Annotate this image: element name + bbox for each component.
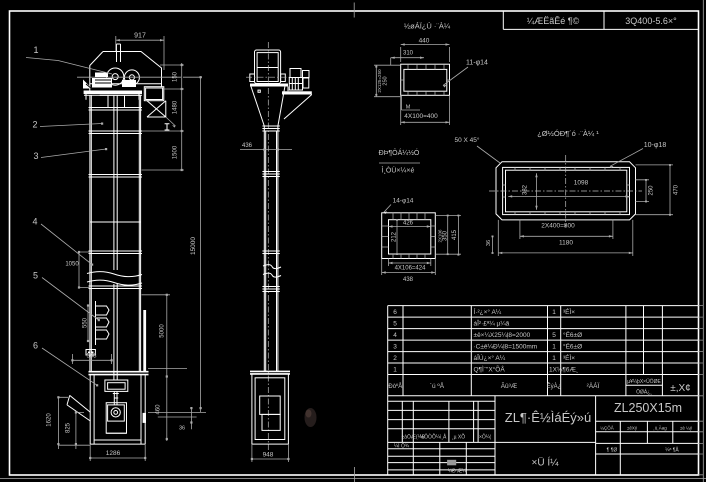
svg-text:150: 150	[173, 71, 179, 82]
svg-text:¼ÔÒÕ¼ì¸Å: ¼ÔÒÕ¼ì¸Å	[420, 434, 447, 441]
svg-text:¸µ XÕ: ¸µ XÕ	[452, 434, 465, 441]
svg-text:50 X 45°: 50 X 45°	[454, 136, 479, 144]
svg-text:±êXý: ±êXý	[627, 426, 638, 431]
svg-text:588: 588	[86, 354, 97, 360]
svg-text:°Ë6±Ø: °Ë6±Ø	[563, 331, 582, 339]
svg-text:948: 948	[263, 452, 274, 459]
svg-text:1500: 1500	[173, 145, 179, 159]
svg-text:550: 550	[83, 317, 89, 328]
svg-text:±,X¢: ±,X¢	[670, 383, 691, 394]
svg-text:1098: 1098	[574, 180, 589, 187]
svg-text:¼ÇÖÅ: ¼ÇÖÅ	[600, 425, 614, 431]
svg-text:ZL¶·Ê½ÌáÉý»ú: ZL¶·Ê½ÌáÉý»ú	[505, 410, 591, 425]
svg-text:3: 3	[33, 151, 38, 161]
svg-text:1050: 1050	[65, 262, 79, 268]
svg-text:350: 350	[442, 230, 448, 241]
svg-text:4X106=424: 4X106=424	[395, 266, 427, 272]
svg-text:áÎ²·£ª¼ µ¼ã: áÎ²·£ª¼ µ¼ã	[474, 319, 510, 328]
svg-text:6: 6	[33, 341, 38, 351]
svg-text:2: 2	[32, 120, 37, 130]
svg-text:4: 4	[393, 332, 397, 339]
svg-text:ÐòºÅ: ÐòºÅ	[388, 383, 402, 390]
svg-text:5: 5	[552, 332, 556, 339]
svg-text:±ê×¼X25¼ļ8=2000: ±ê×¼X25¼ļ8=2000	[474, 332, 531, 339]
svg-text:Q¶Ì¨"X°ÕÅ: Q¶Ì¨"X°ÕÅ	[474, 365, 506, 374]
svg-text:36: 36	[486, 240, 492, 246]
svg-text:2: 2	[393, 355, 397, 362]
svg-text:1480: 1480	[173, 100, 179, 114]
svg-text:825: 825	[66, 422, 72, 433]
svg-text:310: 310	[403, 51, 414, 57]
svg-text:3Q400-5.6×°: 3Q400-5.6×°	[625, 16, 677, 26]
svg-text:¶ ¶Ø: ¶ ¶Ø	[607, 448, 618, 454]
svg-text:1286: 1286	[106, 450, 121, 457]
svg-text:470: 470	[674, 184, 680, 195]
svg-text:1: 1	[552, 344, 556, 351]
svg-text:1620: 1620	[47, 413, 53, 427]
svg-text:¼Ð Æ¼: ¼Ð Æ¼	[448, 469, 467, 475]
svg-text:250: 250	[383, 76, 389, 85]
svg-text:¸ü¸Äag: ¸ü¸Äag	[653, 425, 667, 432]
svg-text:ZL250X15m: ZL250X15m	[614, 401, 682, 415]
svg-text:5000: 5000	[160, 324, 166, 338]
svg-text:°Ë6±Ø: °Ë6±Ø	[563, 343, 582, 351]
svg-text:250: 250	[649, 185, 655, 196]
svg-text:1: 1	[33, 45, 38, 55]
svg-text:2X400=800: 2X400=800	[541, 223, 575, 230]
svg-text:10-φ18: 10-φ18	[644, 142, 667, 149]
svg-text:Í·²¿×° A¼: Í·²¿×° A¼	[474, 307, 502, 316]
svg-text:438: 438	[403, 277, 414, 283]
svg-text:1X¼¶6Æ¸: 1X¼¶6Æ¸	[549, 367, 578, 374]
svg-text:15000: 15000	[190, 237, 197, 255]
svg-text:415: 415	[452, 229, 458, 240]
svg-text:3: 3	[393, 344, 397, 351]
svg-text:4: 4	[32, 217, 37, 227]
svg-text:ÊýÀ¿: ÊýÀ¿	[547, 382, 562, 390]
svg-text:14-φ14: 14-φ14	[393, 198, 414, 205]
svg-text:Ãû³Æ: Ãû³Æ	[501, 381, 518, 390]
svg-text:1: 1	[393, 367, 397, 374]
svg-text:11-φ14: 11-φ14	[466, 60, 488, 67]
svg-text:1180: 1180	[559, 240, 573, 247]
svg-text:¼Ì Ö¾: ¼Ì Ö¾	[394, 443, 410, 450]
svg-text:M: M	[406, 105, 411, 111]
svg-text:917: 917	[134, 33, 146, 40]
svg-text:³ÉÌ×: ³ÉÌ×	[563, 353, 575, 362]
svg-text:212: 212	[392, 231, 398, 242]
svg-text:Ì¸ÒÙ×¼×é: Ì¸ÒÙ×¼×é	[382, 166, 415, 175]
svg-text:1: 1	[552, 309, 556, 316]
svg-text:¼ª ¶Å: ¼ª ¶Å	[665, 447, 679, 454]
svg-text:¿Ø½ÓÐ¶´ó ·¨À¼ ¹: ¿Ø½ÓÐ¶´ó ·¨À¼ ¹	[537, 129, 599, 138]
svg-text:4X100=400: 4X100=400	[404, 113, 438, 120]
svg-text:ÐÞ¶ÔÁ¼½Ó: ÐÞ¶ÔÁ¼½Ó	[379, 148, 420, 157]
svg-text:·C±ê¼Ð¼ļ8=1500mm: ·C±ê¼Ð¼ļ8=1500mm	[474, 344, 538, 351]
svg-text:×Ô¼¦: ×Ô¼¦	[479, 434, 491, 441]
svg-text:½øÁÏ¿Ú ·¨À¼: ½øÁÏ¿Ú ·¨À¼	[404, 22, 451, 31]
svg-text:6: 6	[393, 309, 397, 316]
svg-text:382: 382	[523, 184, 529, 195]
svg-text:³ÉÌ×: ³ÉÌ×	[563, 307, 575, 316]
svg-text:36: 36	[179, 426, 185, 432]
svg-text:440: 440	[419, 38, 430, 45]
svg-text:µ¥¼þX×ÜÖØE: µ¥¼þX×ÜÖØE	[627, 378, 661, 385]
svg-text:²ÄÁÏ: ²ÄÁÏ	[587, 381, 600, 390]
svg-text:×Ü Í¼: ×Ü Í¼	[532, 456, 560, 469]
svg-text:436: 436	[242, 143, 253, 149]
svg-text:2X125=250: 2X125=250	[377, 69, 382, 93]
svg-text:´ú ºÅ: ´ú ºÅ	[430, 381, 445, 390]
svg-text:1: 1	[552, 355, 556, 362]
svg-text:ÖØÁ¿¸: ÖØÁ¿¸	[636, 389, 652, 396]
svg-text:2X106: 2X106	[438, 229, 443, 243]
svg-text:±è ¼ý: ±è ¼ý	[680, 426, 693, 431]
svg-text:áÎÚ¿×° A¼: áÎÚ¿×° A¼	[474, 353, 506, 362]
svg-text:¼ÆËãÊé ¶©: ¼ÆËãÊé ¶©	[527, 16, 580, 26]
svg-text:5: 5	[33, 271, 38, 281]
svg-text:5: 5	[393, 321, 397, 328]
svg-text:460: 460	[156, 404, 162, 415]
svg-text:426: 426	[403, 221, 414, 227]
